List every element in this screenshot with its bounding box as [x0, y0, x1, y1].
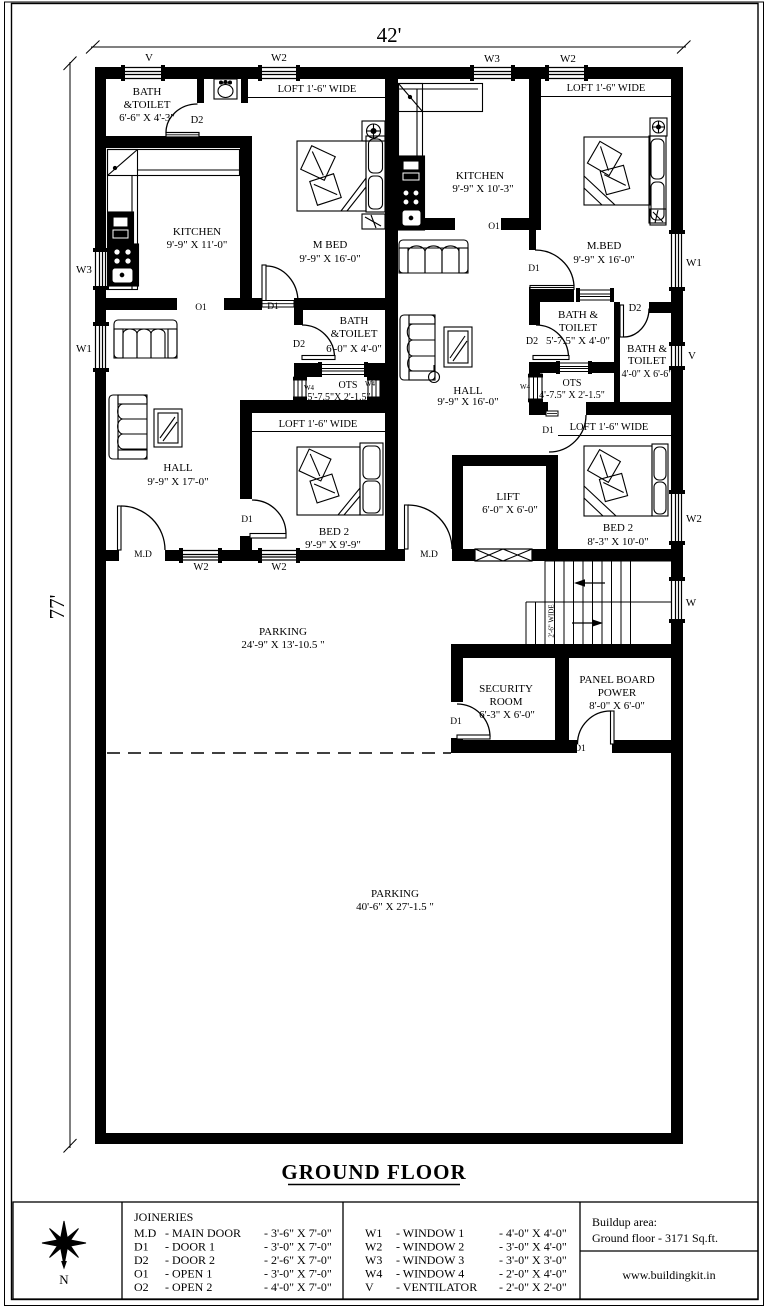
svg-text:M.D: M.D [420, 550, 438, 560]
svg-text:6'-0" X 6'-0": 6'-0" X 6'-0" [482, 504, 538, 516]
svg-text:ROOM: ROOM [489, 696, 522, 708]
svg-text:5'-7.5"X 2'-1.5": 5'-7.5"X 2'-1.5" [307, 392, 370, 403]
svg-text:BATH: BATH [133, 86, 162, 98]
svg-text:OTS: OTS [339, 380, 358, 391]
svg-text:W3: W3 [365, 1253, 382, 1267]
svg-text:D2: D2 [293, 339, 305, 350]
svg-text:8'-0" X 6'-0": 8'-0" X 6'-0" [589, 700, 645, 712]
svg-text:- 3'-0" X 4'-0": - 3'-0" X 4'-0" [499, 1240, 567, 1254]
svg-text:W2: W2 [365, 1240, 382, 1254]
svg-text:BATH &: BATH & [627, 343, 667, 355]
svg-text:40'-6" X 27'-1.5 ": 40'-6" X 27'-1.5 " [356, 901, 434, 913]
svg-text:W2: W2 [271, 52, 287, 64]
svg-text:D1: D1 [528, 264, 540, 274]
svg-text:M.D: M.D [134, 550, 152, 560]
svg-text:JOINERIES: JOINERIES [134, 1210, 193, 1224]
svg-text:HALL: HALL [163, 462, 193, 474]
svg-text:POWER: POWER [598, 687, 637, 699]
svg-text:4'-7.5" X 2'-1.5": 4'-7.5" X 2'-1.5" [539, 390, 605, 401]
svg-text:&TOILET: &TOILET [331, 328, 378, 340]
svg-text:6'-3" X 6'-0": 6'-3" X 6'-0" [479, 709, 535, 721]
svg-text:5'-7.5" X 4'-0": 5'-7.5" X 4'-0" [546, 335, 610, 347]
svg-text:D1: D1 [574, 744, 586, 754]
svg-text:N: N [59, 1272, 69, 1287]
svg-text:V: V [688, 350, 696, 362]
svg-text:9'-9" X 16'-0": 9'-9" X 16'-0" [299, 253, 360, 265]
svg-text:LIFT: LIFT [496, 491, 520, 503]
svg-text:42': 42' [377, 23, 402, 47]
svg-text:- 4'-0" X 4'-0": - 4'-0" X 4'-0" [499, 1226, 567, 1240]
svg-text:W2: W2 [560, 53, 576, 65]
svg-text:O1: O1 [195, 303, 207, 313]
svg-text:- 2'-0" X 2'-0": - 2'-0" X 2'-0" [499, 1280, 567, 1294]
svg-text:- WINDOW 1: - WINDOW 1 [396, 1226, 464, 1240]
svg-text:- 3'-0" X 7'-0": - 3'-0" X 7'-0" [264, 1267, 332, 1281]
svg-text:- 3'-0" X 7'-0": - 3'-0" X 7'-0" [264, 1240, 332, 1254]
svg-text:D1: D1 [134, 1240, 149, 1254]
svg-text:9'-9" X 16'-0": 9'-9" X 16'-0" [573, 254, 634, 266]
svg-text:6'-6" X 4'-3": 6'-6" X 4'-3" [119, 112, 175, 124]
svg-text:9'-9" X 16'-0": 9'-9" X 16'-0" [437, 396, 498, 408]
svg-text:- DOOR 1: - DOOR 1 [165, 1240, 215, 1254]
svg-text:9'-9" X 10'-3": 9'-9" X 10'-3" [452, 183, 513, 195]
svg-text:KITCHEN: KITCHEN [456, 170, 504, 182]
svg-text:O1: O1 [488, 222, 500, 232]
svg-text:W1: W1 [365, 1226, 382, 1240]
svg-text:LOFT 1'-6" WIDE: LOFT 1'-6" WIDE [278, 84, 357, 95]
svg-text:LOFT 1'-6" WIDE: LOFT 1'-6" WIDE [279, 419, 358, 430]
svg-text:PARKING: PARKING [259, 626, 307, 638]
svg-text:M BED: M BED [313, 239, 348, 251]
svg-text:GROUND FLOOR: GROUND FLOOR [281, 1160, 466, 1184]
svg-text:24'-9" X 13'-10.5 ": 24'-9" X 13'-10.5 " [241, 639, 324, 651]
svg-text:W1: W1 [76, 343, 92, 355]
svg-text:W2: W2 [193, 562, 208, 573]
svg-text:77': 77' [45, 595, 69, 620]
svg-text:SECURITY: SECURITY [479, 683, 533, 695]
svg-text:TOILET: TOILET [559, 322, 598, 334]
svg-text:W4: W4 [304, 384, 315, 392]
svg-text:- DOOR 2: - DOOR 2 [165, 1253, 215, 1267]
svg-text:W4: W4 [365, 380, 376, 388]
svg-text:D2: D2 [191, 115, 204, 126]
svg-text:W2: W2 [686, 513, 702, 525]
svg-text:M.D: M.D [134, 1226, 157, 1240]
svg-text:BED 2: BED 2 [319, 526, 349, 538]
svg-text:- WINDOW 4: - WINDOW 4 [396, 1267, 464, 1281]
svg-text:W4: W4 [365, 1267, 382, 1281]
svg-text:- WINDOW 3: - WINDOW 3 [396, 1253, 464, 1267]
svg-text:BED 2: BED 2 [603, 522, 633, 534]
svg-text:9'-9" X 11'-0": 9'-9" X 11'-0" [167, 239, 228, 251]
svg-text:- 2'-0" X 4'-0": - 2'-0" X 4'-0" [499, 1267, 567, 1281]
svg-text:2'-6" WIDE: 2'-6" WIDE [548, 604, 556, 637]
svg-text:- OPEN 1: - OPEN 1 [165, 1267, 212, 1281]
svg-text:M.BED: M.BED [587, 240, 622, 252]
svg-text:TOILET: TOILET [628, 355, 667, 367]
svg-text:- VENTILATOR: - VENTILATOR [396, 1280, 477, 1294]
svg-text:LOFT 1'-6" WIDE: LOFT 1'-6" WIDE [567, 83, 646, 94]
svg-text:D2: D2 [526, 336, 538, 347]
svg-text:- 3'-6" X 7'-0": - 3'-6" X 7'-0" [264, 1226, 332, 1240]
svg-text:W3: W3 [484, 53, 500, 65]
svg-text:Buildup area:: Buildup area: [592, 1215, 657, 1229]
svg-text:- 2'-6" X 7'-0": - 2'-6" X 7'-0" [264, 1253, 332, 1267]
svg-text:- MAIN DOOR: - MAIN DOOR [165, 1226, 241, 1240]
svg-text:- WINDOW 2: - WINDOW 2 [396, 1240, 464, 1254]
svg-text:6'-0" X 4'-0": 6'-0" X 4'-0" [326, 343, 382, 355]
svg-text:PANEL BOARD: PANEL BOARD [579, 674, 654, 686]
svg-text:- 4'-0" X 7'-0": - 4'-0" X 7'-0" [264, 1280, 332, 1294]
svg-text:V: V [365, 1280, 374, 1294]
svg-text:BATH: BATH [340, 315, 369, 327]
svg-text:O1: O1 [134, 1267, 149, 1281]
svg-text:D2: D2 [134, 1253, 149, 1267]
svg-text:O2: O2 [134, 1280, 149, 1294]
svg-text:&TOILET: &TOILET [124, 99, 171, 111]
svg-text:9'-9" X 9'-9": 9'-9" X 9'-9" [305, 539, 361, 551]
svg-text:W2: W2 [271, 562, 286, 573]
svg-text:4'-0" X 6'-6": 4'-0" X 6'-6" [622, 369, 673, 380]
svg-text:9'-9" X 17'-0": 9'-9" X 17'-0" [147, 476, 208, 488]
svg-text:W3: W3 [76, 264, 92, 276]
svg-text:D1: D1 [267, 302, 279, 312]
svg-text:W1: W1 [686, 257, 702, 269]
svg-text:OTS: OTS [563, 378, 582, 389]
svg-text:- 3'-0" X 3'-0": - 3'-0" X 3'-0" [499, 1253, 567, 1267]
svg-text:D1: D1 [542, 426, 554, 436]
svg-text:8'-3" X 10'-0": 8'-3" X 10'-0" [587, 536, 648, 548]
svg-text:BATH &: BATH & [558, 309, 598, 321]
svg-text:W: W [686, 597, 697, 609]
svg-text:D1: D1 [241, 515, 253, 525]
svg-text:www.buildingkit.in: www.buildingkit.in [622, 1268, 715, 1282]
svg-text:D2: D2 [629, 303, 642, 314]
svg-text:W4: W4 [520, 383, 531, 391]
svg-text:V: V [145, 52, 153, 64]
svg-text:Ground floor - 3171 Sq.ft.: Ground floor - 3171 Sq.ft. [592, 1231, 718, 1245]
svg-text:- OPEN 2: - OPEN 2 [165, 1280, 212, 1294]
svg-text:LOFT 1'-6" WIDE: LOFT 1'-6" WIDE [570, 422, 649, 433]
svg-text:KITCHEN: KITCHEN [173, 226, 221, 238]
svg-text:D1: D1 [450, 717, 462, 727]
svg-text:PARKING: PARKING [371, 888, 419, 900]
